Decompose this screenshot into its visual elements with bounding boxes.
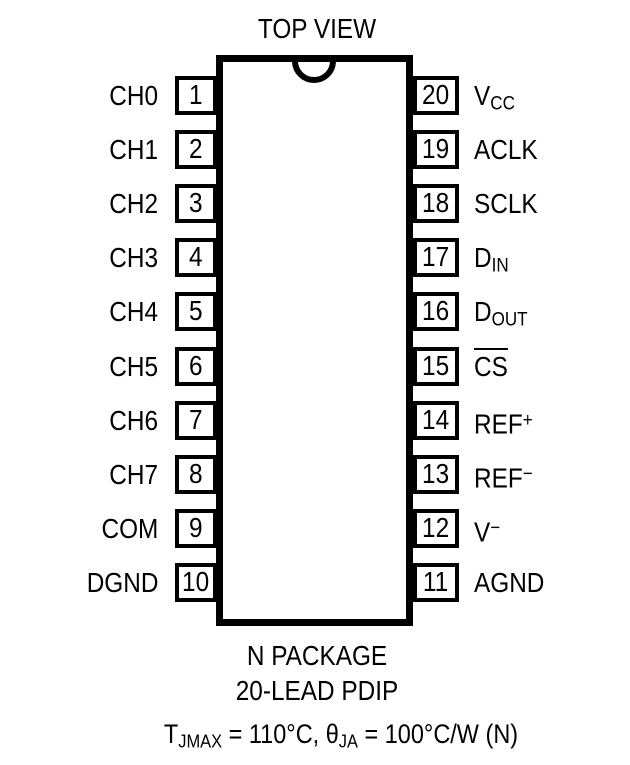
notch-semicircle	[292, 62, 336, 83]
pin-number: 10	[182, 567, 209, 597]
pin-number: 15	[422, 351, 449, 381]
pin-number: 6	[189, 351, 203, 381]
pin-box-18: 18	[413, 184, 459, 223]
pin-number: 12	[422, 513, 449, 543]
pin-label-11: AGND	[474, 563, 544, 602]
top-view-label: TOP VIEW	[258, 15, 376, 43]
pin-label-12: V−	[474, 509, 500, 548]
pin-number: 7	[189, 405, 203, 435]
pin-box-16: 16	[413, 292, 459, 331]
pin-number: 1	[189, 80, 203, 110]
pin-label-4: CH3	[109, 238, 158, 277]
label-base: V	[474, 516, 490, 547]
pin-number: 2	[189, 134, 203, 164]
thermal-text: = 100°C/W (N)	[358, 719, 518, 749]
thermal-subscript: JMAX	[178, 732, 222, 753]
overline-text: CS	[474, 348, 508, 381]
pin-box-6: 6	[175, 347, 217, 386]
pin-label-20: VCC	[474, 76, 515, 115]
pin-label-5: CH4	[109, 292, 158, 331]
pin-number: 14	[422, 405, 449, 435]
label-superscript: −	[490, 517, 500, 539]
thermal-subscript: JA	[339, 732, 358, 753]
pin-box-20: 20	[413, 76, 459, 115]
pin-label-9: COM	[101, 509, 158, 548]
pin-label-8: CH7	[109, 455, 158, 494]
label-base: CH5	[109, 351, 158, 382]
pin-label-2: CH1	[109, 130, 158, 169]
pin-label-10: DGND	[86, 563, 158, 602]
pin-label-17: DIN	[474, 238, 509, 277]
pin-box-4: 4	[175, 238, 217, 277]
pin1-notch-icon	[292, 62, 337, 84]
pin-label-13: REF−	[474, 455, 533, 494]
pin-box-19: 19	[413, 130, 459, 169]
pin-number: 13	[422, 459, 449, 489]
pin-label-6: CH5	[109, 347, 158, 386]
pin-label-18: SCLK	[474, 184, 538, 223]
label-base: V	[474, 80, 490, 111]
label-base: REF	[474, 408, 523, 439]
pin-label-3: CH2	[109, 184, 158, 223]
label-base: DGND	[86, 567, 158, 598]
pin-box-13: 13	[413, 455, 459, 494]
package-type: 20-LEAD PDIP	[236, 677, 398, 705]
label-base: D	[474, 242, 492, 273]
thermal-text: = 110°C, θ	[222, 719, 339, 749]
thermal-note: TJMAX = 110°C, θJA = 100°C/W (N)	[164, 721, 518, 756]
pin-number: 16	[422, 296, 449, 326]
label-base: CH4	[109, 296, 158, 327]
label-base: CH1	[109, 134, 158, 165]
ic-body	[216, 55, 413, 626]
pin-box-12: 12	[413, 509, 459, 548]
pin-number: 3	[189, 188, 203, 218]
label-subscript: IN	[492, 255, 509, 277]
label-base: CH6	[109, 405, 158, 436]
pin-box-5: 5	[175, 292, 217, 331]
label-base: REF	[474, 462, 523, 493]
pin-number: 19	[422, 134, 449, 164]
pin-box-3: 3	[175, 184, 217, 223]
pin-box-11: 11	[413, 563, 459, 602]
label-base: SCLK	[474, 188, 538, 219]
pin-label-16: DOUT	[474, 292, 528, 331]
pin-number: 5	[189, 296, 203, 326]
pin-number: 18	[422, 188, 449, 218]
pinout-diagram: TOP VIEW 1CH02CH13CH24CH35CH46CH57CH68CH…	[0, 0, 630, 765]
pin-label-19: ACLK	[474, 130, 538, 169]
pin-number: 17	[422, 242, 449, 272]
pin-box-15: 15	[413, 347, 459, 386]
pin-box-17: 17	[413, 238, 459, 277]
pin-label-14: REF+	[474, 401, 533, 440]
label-base: CH3	[109, 242, 158, 273]
pin-number: 9	[189, 513, 203, 543]
pin-box-8: 8	[175, 455, 217, 494]
package-name: N PACKAGE	[247, 642, 387, 670]
pin-label-7: CH6	[109, 401, 158, 440]
label-superscript: +	[523, 409, 533, 431]
pin-number: 8	[189, 459, 203, 489]
label-base: AGND	[474, 567, 544, 598]
pin-box-14: 14	[413, 401, 459, 440]
pin-box-7: 7	[175, 401, 217, 440]
label-base: CH2	[109, 188, 158, 219]
label-subscript: OUT	[492, 309, 528, 331]
pin-number: 20	[422, 80, 449, 110]
label-base: D	[474, 296, 492, 327]
label-base: ACLK	[474, 134, 538, 165]
pin-box-2: 2	[175, 130, 217, 169]
label-superscript: −	[523, 463, 533, 485]
pin-number: 4	[189, 242, 203, 272]
pin-box-1: 1	[175, 76, 217, 115]
label-base: COM	[101, 513, 158, 544]
pin-label-15: CS	[474, 347, 508, 386]
thermal-text: T	[164, 719, 178, 749]
pin-number: 11	[423, 567, 448, 597]
label-base: CH0	[109, 80, 158, 111]
label-subscript: CC	[490, 93, 515, 115]
pin-box-9: 9	[175, 509, 217, 548]
pin-box-10: 10	[175, 563, 217, 602]
pin-label-1: CH0	[109, 76, 158, 115]
label-base: CH7	[109, 459, 158, 490]
